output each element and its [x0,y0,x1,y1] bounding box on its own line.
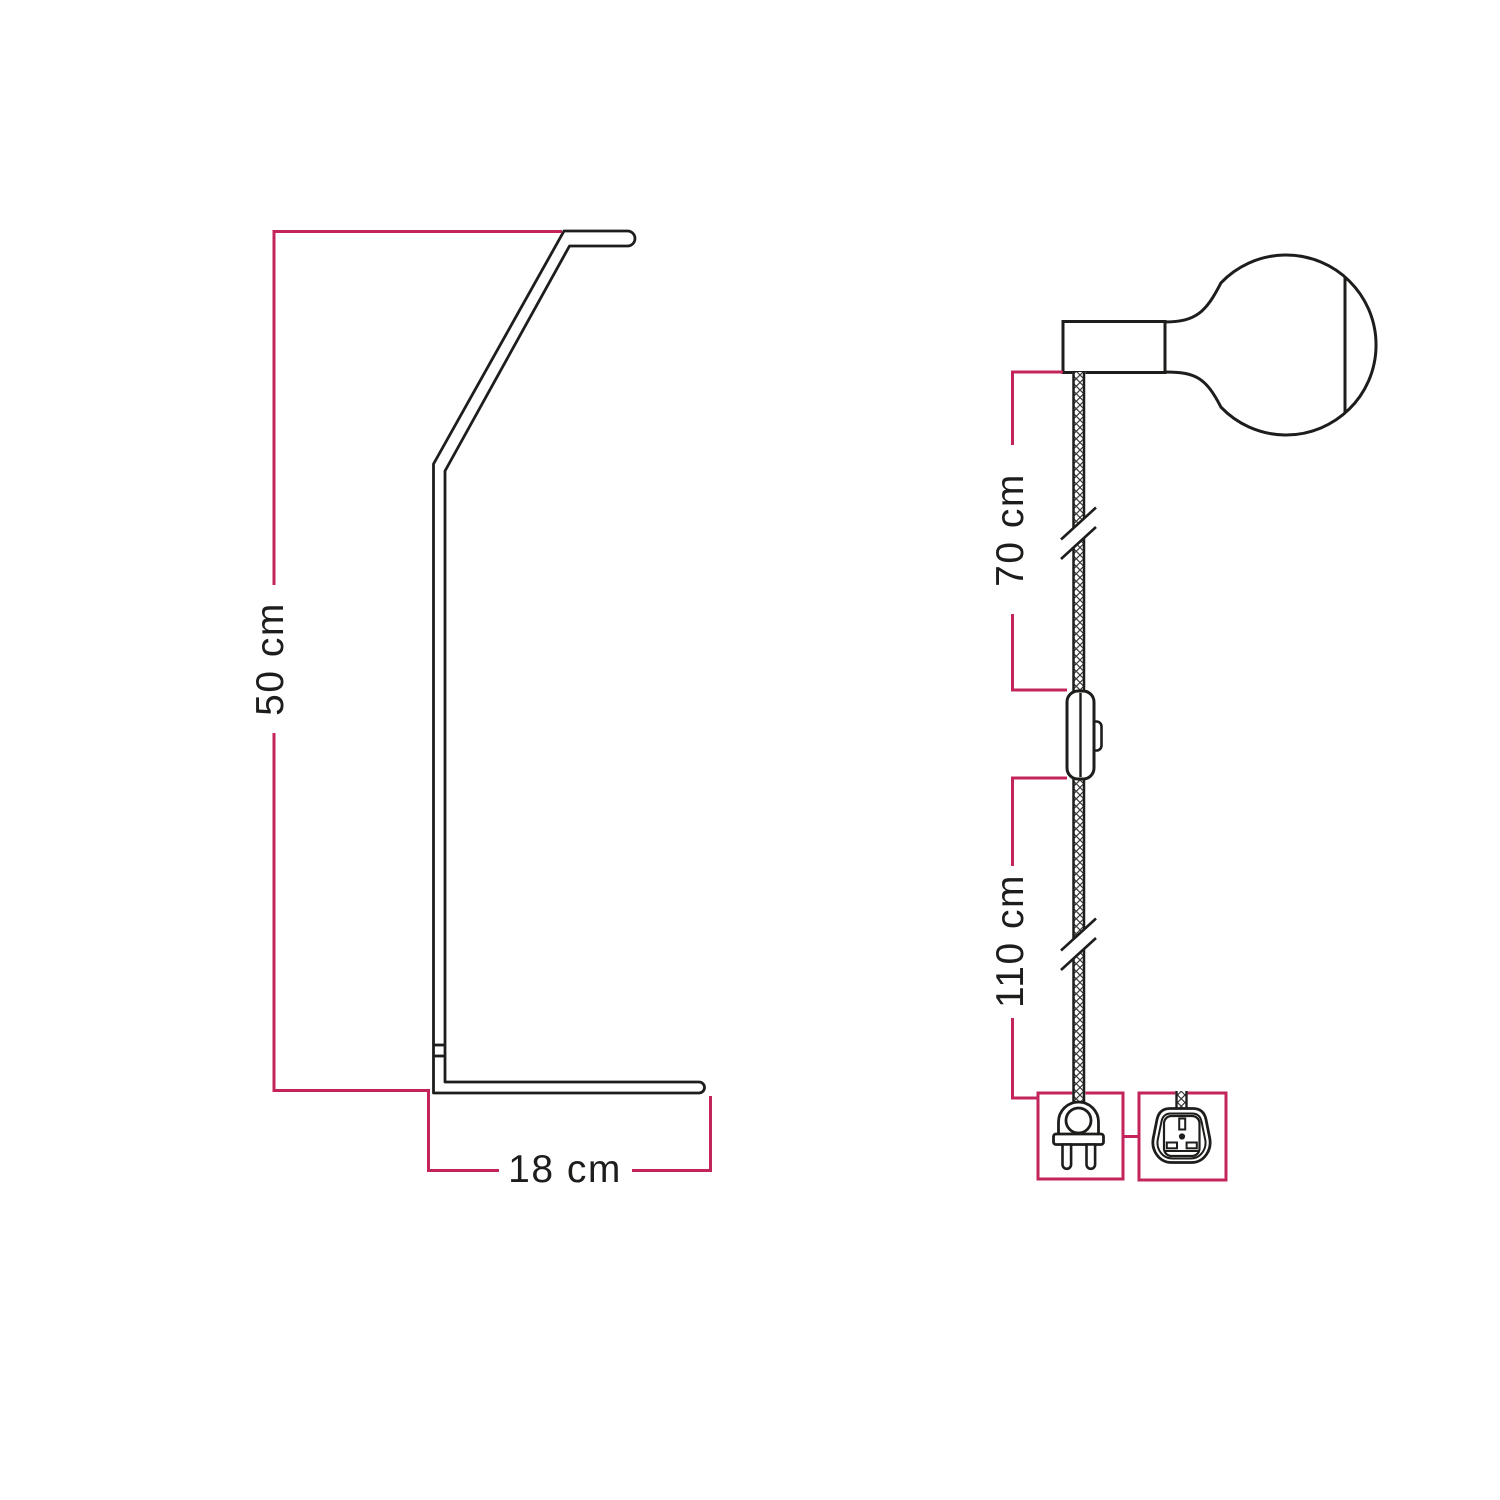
upper-cable-dimension-label: 70 cm [989,473,1032,587]
pendant-dimension-lines [1013,372,1227,1180]
diagram-svg: 50 cm 18 cm [0,0,1500,1500]
uk-earth-slot [1179,1119,1185,1130]
height-dimension-line-lower [274,733,499,1171]
uk-pin-slot [1187,1143,1197,1149]
plug-pin [1063,1145,1072,1169]
plug-cable-entry [1066,1108,1091,1133]
base-dimension-line [632,1096,711,1171]
base-dimension-label: 18 cm [508,1148,622,1191]
lower-cable-dimension-bottom [1013,1018,1039,1098]
lamp-dimensions-diagram: 50 cm 18 cm [0,0,1500,1500]
upper-cable-dimension-top [1013,372,1064,445]
two-pin-plug-icon [1054,1102,1104,1169]
lower-cable-dimension-label: 110 cm [989,874,1032,1008]
uk-screw-dot [1179,1133,1185,1139]
inline-switch-icon [1067,691,1102,779]
upper-cable-dimension-bottom [1013,614,1068,690]
stand-profile [434,231,705,1093]
height-dimension-label: 50 cm [249,602,292,716]
uk-plug-icon [1153,1091,1210,1163]
globe-bulb-icon [1063,255,1376,435]
stand-profile-outline [434,231,705,1093]
lower-cable-dimension-top [1013,778,1068,866]
plug-pin [1087,1145,1096,1169]
height-dimension-line-upper [274,232,562,586]
lamp-holder [1063,322,1165,373]
plug-base [1054,1134,1104,1145]
uk-pin-slot [1167,1143,1177,1149]
